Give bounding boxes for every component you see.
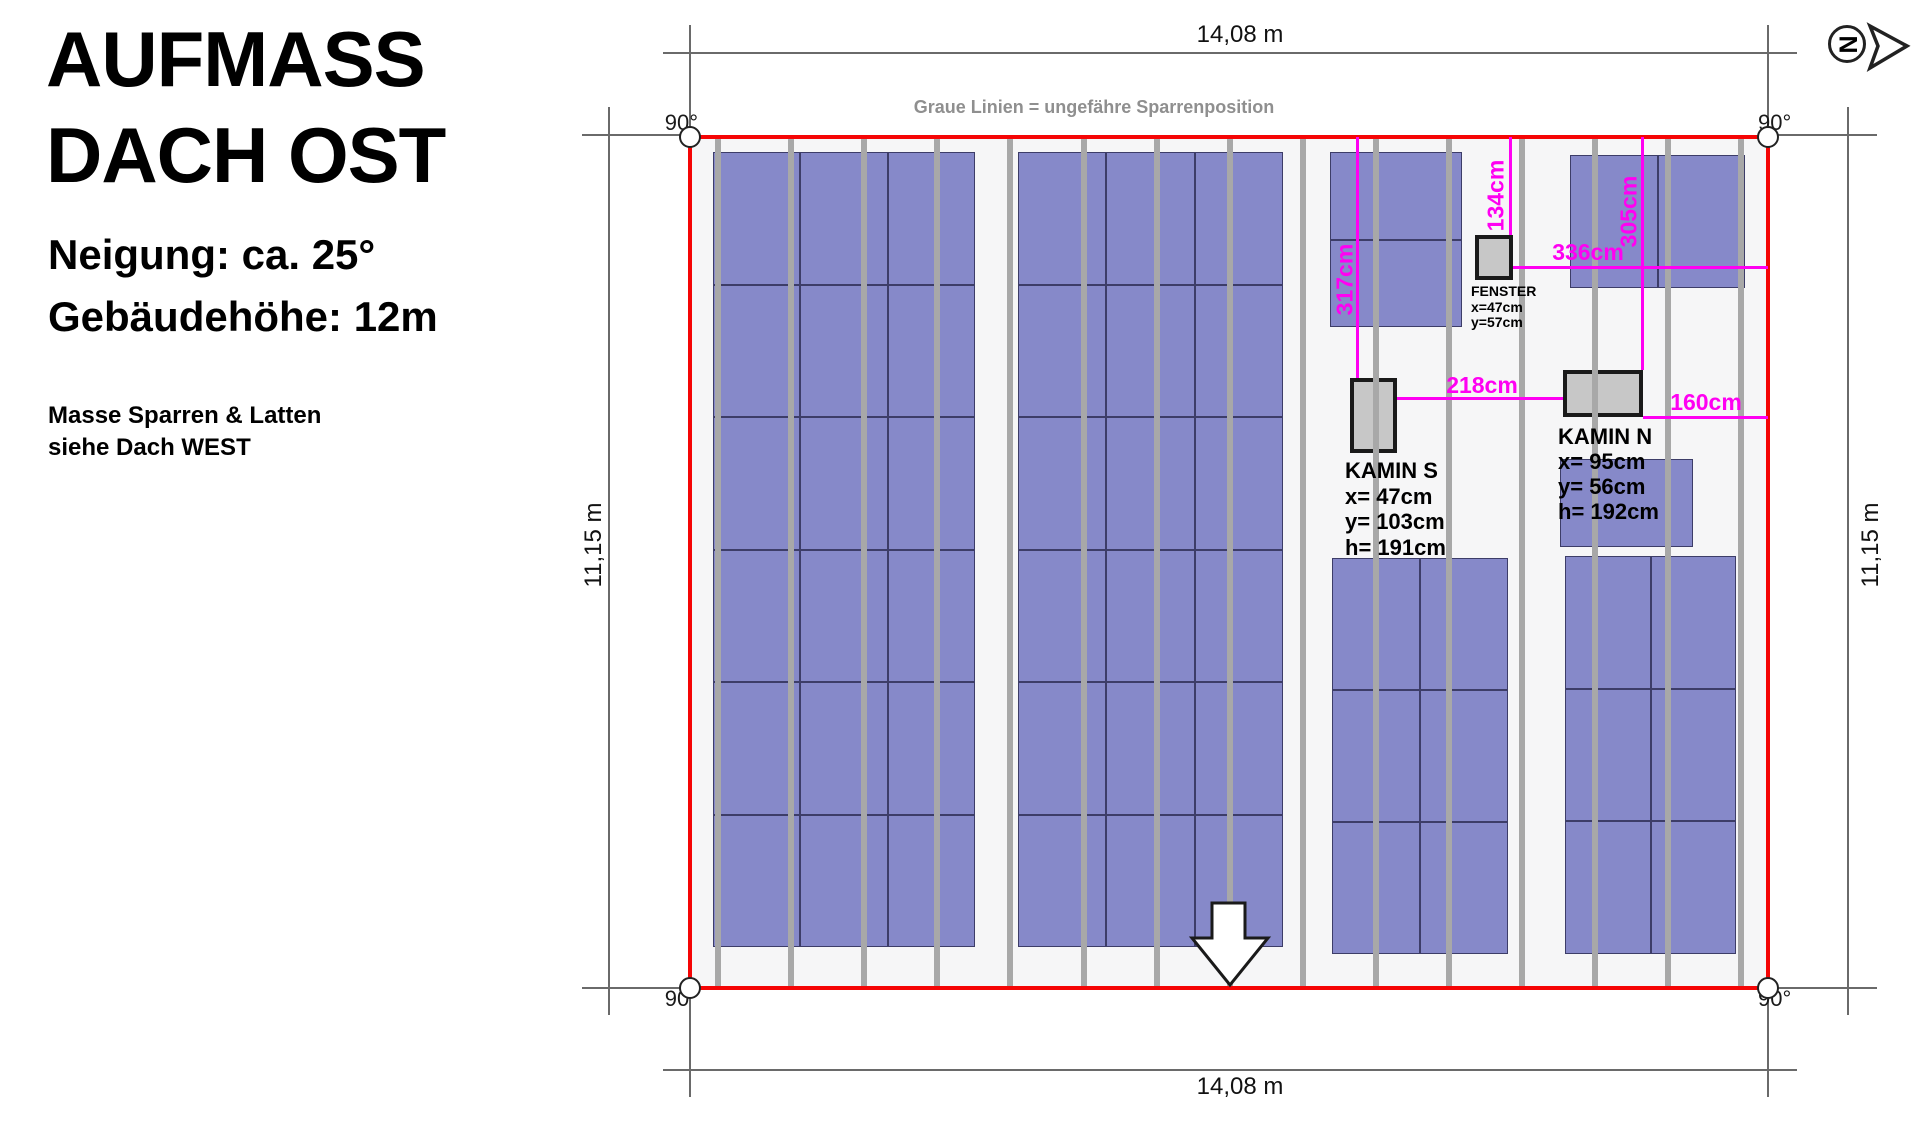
kamin-n-label-line: KAMIN N [1558, 424, 1652, 450]
solar-panel [1195, 417, 1283, 550]
rafter-line [715, 139, 721, 986]
solar-panel [1195, 285, 1283, 418]
measurement-label: 218cm [1422, 372, 1542, 399]
solar-panel [1651, 689, 1737, 822]
dimension-line [663, 1069, 1797, 1071]
solar-panel [1018, 285, 1106, 418]
measurement-label: 336cm [1528, 239, 1648, 266]
fenster-label-line: y=57cm [1471, 314, 1523, 330]
measurement-label: 134cm [1483, 136, 1510, 256]
kamin-s-label-line: x= 47cm [1345, 484, 1432, 510]
north-compass-icon: N [1828, 25, 1866, 63]
rafter-line [1227, 139, 1233, 986]
solar-panel [888, 285, 975, 418]
dimension-label-left: 11,15 m [580, 465, 608, 625]
kamin-s-label-line: y= 103cm [1345, 509, 1445, 535]
page-title-line2: DACH OST [46, 116, 445, 194]
rafter-line [1300, 139, 1306, 986]
kamin-s-label-line: KAMIN S [1345, 458, 1438, 484]
solar-panel [1651, 821, 1737, 954]
roof-pitch-label: Neigung: ca. 25° [48, 234, 375, 276]
solar-panel [800, 815, 887, 948]
solar-panel [1651, 556, 1737, 689]
solar-panel [1018, 815, 1106, 948]
solar-panel [1420, 690, 1508, 822]
solar-panel [800, 417, 887, 550]
rafter-line [1446, 139, 1452, 986]
solar-panel [1018, 417, 1106, 550]
dimension-line [663, 52, 1797, 54]
corner-angle-marker [679, 977, 701, 999]
solar-panel [1195, 815, 1283, 948]
solar-panel [800, 682, 887, 815]
solar-panel [1420, 558, 1508, 690]
solar-panel [1195, 550, 1283, 683]
corner-angle-marker [1757, 126, 1779, 148]
rafter-line [861, 139, 867, 986]
rafter-note-line2: siehe Dach WEST [48, 436, 251, 460]
solar-panel [888, 417, 975, 550]
kamin-n-label-line: x= 95cm [1558, 449, 1645, 475]
solar-panel [1420, 822, 1508, 954]
rafter-line [1081, 139, 1087, 986]
measurement-label: 160cm [1646, 389, 1766, 416]
solar-panel [1565, 689, 1651, 822]
solar-panel [888, 815, 975, 948]
rafter-note-line1: Masse Sparren & Latten [48, 404, 321, 428]
measurement-label: 317cm [1332, 220, 1359, 340]
solar-panel [1018, 682, 1106, 815]
kamin-s-label-line: h= 191cm [1345, 535, 1446, 561]
kamin-n-label-line: h= 192cm [1558, 499, 1659, 525]
kamin-n-box [1563, 370, 1643, 417]
solar-panel [800, 550, 887, 683]
solar-panel [1106, 682, 1194, 815]
dimension-label-right: 11,15 m [1857, 465, 1885, 625]
solar-panel [1195, 152, 1283, 285]
solar-panel [1106, 417, 1194, 550]
solar-panel [1106, 815, 1194, 948]
solar-panel [1106, 550, 1194, 683]
solar-panel [1195, 682, 1283, 815]
gray-lines-legend: Graue Linien = ungefähre Sparrenposition [884, 97, 1304, 118]
fenster-label-line: FENSTER [1471, 283, 1536, 299]
roof-measurement-diagram: AUFMASS DACH OST Neigung: ca. 25° Gebäud… [0, 0, 1920, 1134]
north-letter: N [1835, 35, 1860, 53]
rafter-line [1007, 139, 1013, 986]
solar-panel [1106, 285, 1194, 418]
solar-panel [1106, 152, 1194, 285]
solar-panel [1565, 821, 1651, 954]
direction-arrow-icon [1866, 21, 1912, 73]
kamin-n-label-line: y= 56cm [1558, 474, 1645, 500]
page-title-line1: AUFMASS [46, 20, 425, 98]
solar-panel [800, 152, 887, 285]
solar-panel [800, 285, 887, 418]
dimension-line [608, 107, 610, 1015]
dimension-label-top: 14,08 m [1140, 21, 1340, 49]
solar-panel [1018, 152, 1106, 285]
building-height-label: Gebäudehöhe: 12m [48, 296, 438, 338]
rafter-line [1154, 139, 1160, 986]
corner-angle-marker [679, 126, 701, 148]
solar-panel [1565, 556, 1651, 689]
solar-panel [888, 152, 975, 285]
fenster-label-line: x=47cm [1471, 299, 1523, 315]
solar-panel [1018, 550, 1106, 683]
rafter-line [788, 139, 794, 986]
rafter-line [1373, 139, 1379, 986]
dimension-label-bottom: 14,08 m [1140, 1073, 1340, 1101]
corner-angle-marker [1757, 977, 1779, 999]
rafter-line [934, 139, 940, 986]
dimension-line [1847, 107, 1849, 1015]
solar-panel [888, 550, 975, 683]
solar-panel [888, 682, 975, 815]
